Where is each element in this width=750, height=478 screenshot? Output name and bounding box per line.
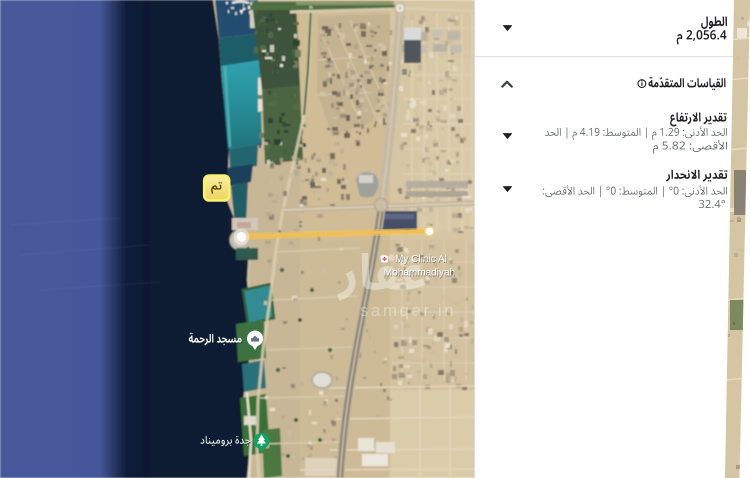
svg-text:samqar.in: samqar.in [360, 301, 456, 320]
svg-text:Mohammadiyah: Mohammadiyah [384, 268, 455, 279]
svg-text:My Clinic Al: My Clinic Al [395, 254, 447, 265]
